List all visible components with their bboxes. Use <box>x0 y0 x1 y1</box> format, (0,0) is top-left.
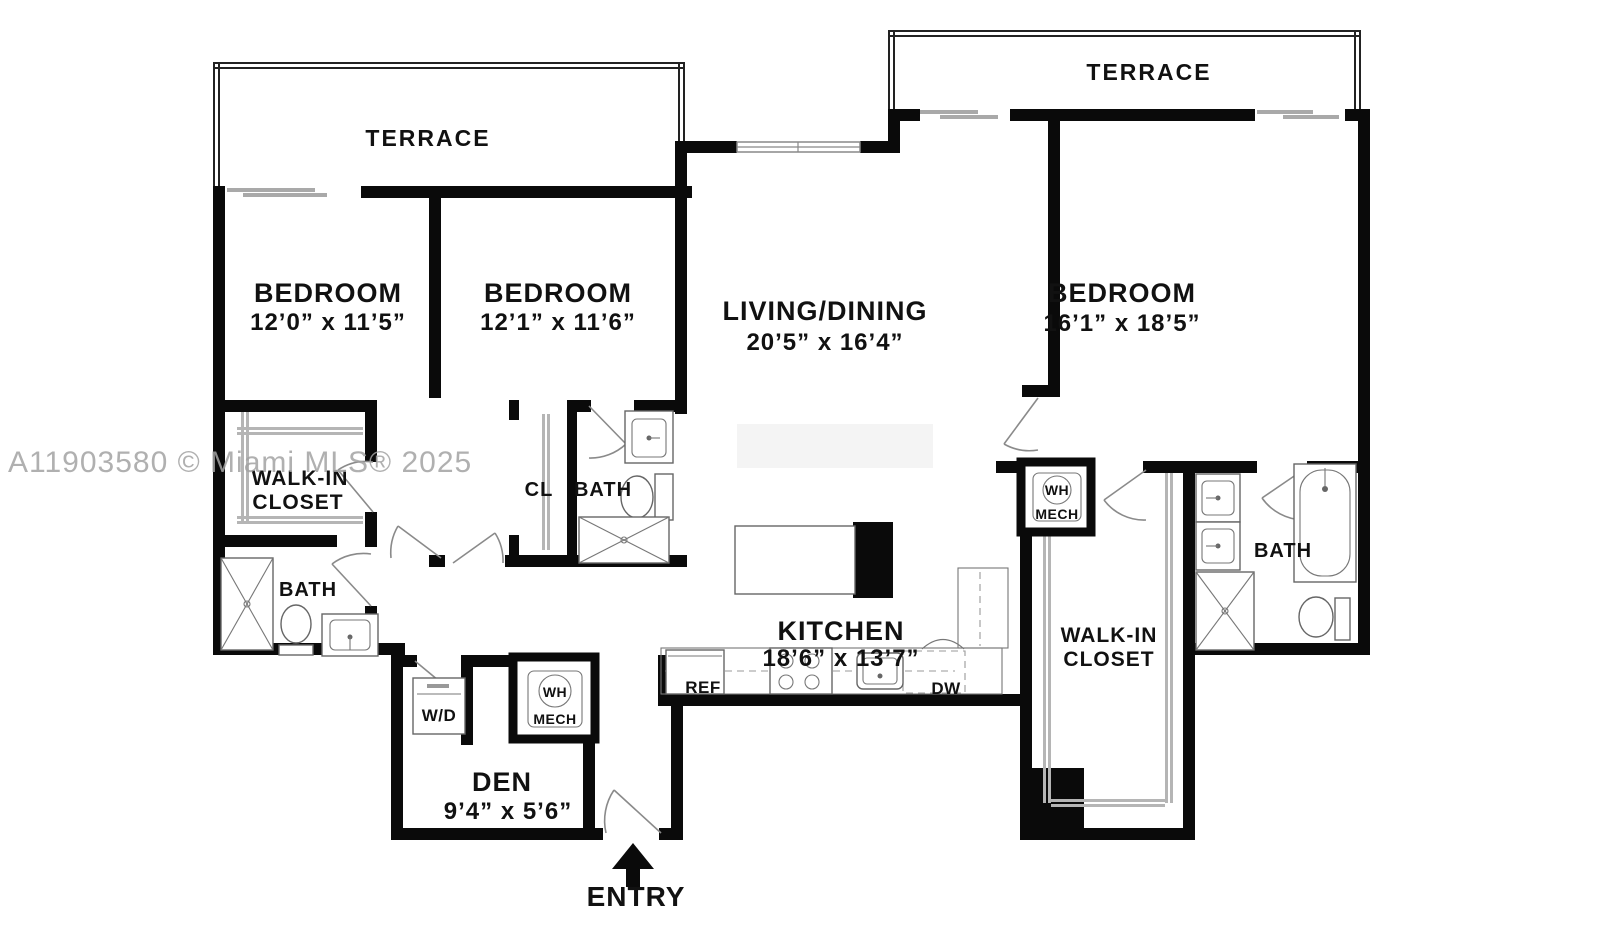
tub-drain-icon <box>1322 486 1328 492</box>
room-label-bedroom-mid: BEDROOM <box>484 278 632 308</box>
room-label-entry: ENTRY <box>587 881 686 912</box>
railing-line <box>213 67 685 69</box>
door-arc <box>332 553 371 564</box>
closet-rod <box>1051 799 1165 802</box>
dining-table-shadow <box>737 424 933 468</box>
door-leaf <box>589 406 626 444</box>
railing-line <box>893 30 895 111</box>
wall <box>1022 385 1060 397</box>
washer-dryer-label: W/D <box>422 706 457 725</box>
wall <box>1010 109 1255 121</box>
wall <box>213 400 377 412</box>
bath-left-fixtures <box>221 558 378 656</box>
room-label-terrace-left: TERRACE <box>365 125 490 151</box>
faucet-icon <box>878 674 883 679</box>
sliding-door-icon <box>227 188 315 192</box>
wall <box>361 186 692 198</box>
toilet <box>1299 597 1333 637</box>
railing-line <box>218 62 220 188</box>
wall <box>509 535 519 567</box>
entry-arrow-icon <box>612 843 654 869</box>
railing-line <box>213 62 685 64</box>
wall <box>1345 109 1370 121</box>
toilet-tank <box>279 645 313 655</box>
wall <box>391 643 403 840</box>
wall <box>860 141 900 153</box>
sliding-door-icon <box>1283 115 1339 119</box>
mech-label: MECH <box>533 711 576 727</box>
sliding-door-icon <box>940 115 998 119</box>
room-label-walkin-right-1: WALK-IN <box>1061 624 1158 647</box>
closet-rod <box>237 432 363 435</box>
laundry-closet: W/D <box>413 678 465 734</box>
wall <box>567 400 577 555</box>
mech-label: MECH <box>1035 506 1078 522</box>
toilet-tank <box>1335 598 1350 640</box>
sliding-doors <box>227 110 1339 197</box>
wall <box>1143 461 1257 473</box>
room-label-bath-left: BATH <box>279 579 337 601</box>
railing-line <box>1354 30 1356 111</box>
room-label-cl: CL <box>525 479 554 501</box>
dishwasher-label: DW <box>931 679 961 698</box>
room-dims-living: 20’5” x 16’4” <box>746 329 903 356</box>
kitchen-counter <box>958 568 1008 648</box>
wall <box>365 512 377 547</box>
toilet <box>281 605 311 643</box>
closet-rod <box>1051 804 1165 807</box>
door-arc <box>1104 500 1146 520</box>
railing-line <box>213 62 215 188</box>
water-heater-right: WH MECH <box>1021 462 1091 532</box>
toilet-tank <box>655 474 673 520</box>
room-label-den: DEN <box>472 767 532 797</box>
wall <box>213 535 337 547</box>
railing-line <box>683 62 685 145</box>
door-leaf <box>1004 398 1038 444</box>
door-leaf <box>1104 470 1146 500</box>
closet-rod <box>1170 473 1173 803</box>
room-label-bath-mid: BATH <box>574 479 632 501</box>
wall <box>634 400 675 412</box>
wh-label: WH <box>543 684 567 700</box>
room-label-bedroom-right: BEDROOM <box>1048 278 1196 308</box>
wall <box>403 655 417 667</box>
wall <box>509 400 519 420</box>
water-heater-left: WH MECH <box>513 657 595 739</box>
sliding-door-icon <box>1257 110 1313 114</box>
wall <box>583 737 595 840</box>
door-leaf <box>453 533 495 563</box>
wh-label: WH <box>1045 482 1069 498</box>
wall <box>671 706 683 840</box>
door-leaf <box>332 564 371 606</box>
closet-rod <box>237 516 363 519</box>
room-dims-bedroom-left: 12’0” x 11’5” <box>250 309 406 336</box>
wall <box>429 555 445 567</box>
floorplan-drawing: W/D WH MECH WH MECH TERRACE TERRACE BEDR… <box>0 0 1600 933</box>
door-arc <box>1004 444 1038 451</box>
room-dims-kitchen: 18’6” x 13’7” <box>762 645 919 672</box>
wall <box>675 141 687 414</box>
closet-rod <box>1165 473 1168 803</box>
island-column <box>853 522 893 598</box>
wall <box>1048 121 1060 385</box>
door-arc <box>605 790 614 833</box>
closet-rod <box>237 427 363 430</box>
railing-line <box>888 30 890 111</box>
refrigerator-label: REF <box>685 678 721 697</box>
door-arc <box>589 444 626 458</box>
railing-line <box>888 30 1360 32</box>
room-dims-den: 9’4” x 5’6” <box>444 798 572 825</box>
mls-watermark: A11903580 © Miami MLS® 2025 <box>8 446 472 479</box>
railing-line <box>1359 30 1361 111</box>
wall <box>429 198 441 398</box>
floorplan-page: W/D WH MECH WH MECH TERRACE TERRACE BEDR… <box>0 0 1600 933</box>
room-label-walkin-right-2: CLOSET <box>1063 648 1154 671</box>
room-label-terrace-right: TERRACE <box>1086 59 1211 85</box>
room-label-living: LIVING/DINING <box>722 296 927 326</box>
door-leaf <box>614 790 661 833</box>
room-label-bedroom-left: BEDROOM <box>254 278 402 308</box>
washer-dryer-controls <box>427 684 449 688</box>
sliding-door-icon <box>243 193 327 197</box>
room-label-walkin-left-2: CLOSET <box>252 491 343 514</box>
wall <box>391 828 603 840</box>
kitchen-island <box>735 526 855 594</box>
door-arc <box>495 533 503 563</box>
room-dims-bedroom-right: 16’1” x 18’5” <box>1043 310 1200 337</box>
closet-rod <box>237 521 363 524</box>
railing-line <box>678 62 680 145</box>
wall <box>1358 109 1370 655</box>
railing-line <box>888 35 1360 37</box>
wall <box>577 400 591 412</box>
door-leaf <box>398 526 441 558</box>
room-dims-bedroom-mid: 12’1” x 11’6” <box>480 309 636 336</box>
door-arc <box>391 526 398 558</box>
room-label-kitchen: KITCHEN <box>778 616 905 646</box>
sliding-door-icon <box>920 110 978 114</box>
room-label-bath-right: BATH <box>1254 540 1312 562</box>
